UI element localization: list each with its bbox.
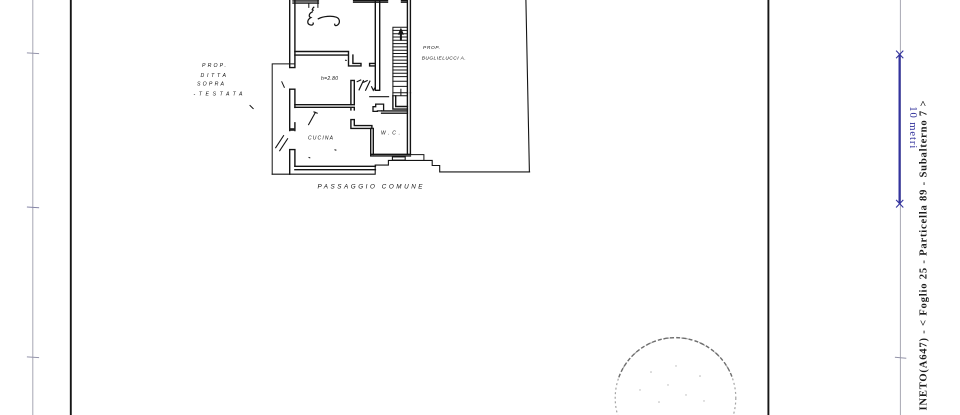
svg-text:PROP.: PROP.	[423, 45, 440, 51]
svg-text:10 metri: 10 metri	[907, 106, 918, 148]
svg-text:h=2.80: h=2.80	[321, 76, 338, 82]
svg-text:BUGLIELUCCI A.: BUGLIELUCCI A.	[422, 55, 466, 61]
svg-text:PASSAGGIO COMUNE: PASSAGGIO COMUNE	[318, 184, 424, 191]
svg-text:CUCINA: CUCINA	[308, 136, 334, 142]
svg-text:INETO(A647) - < Foglio 25 - P: INETO(A647) - < Foglio 25 - Particella 8…	[919, 101, 930, 411]
